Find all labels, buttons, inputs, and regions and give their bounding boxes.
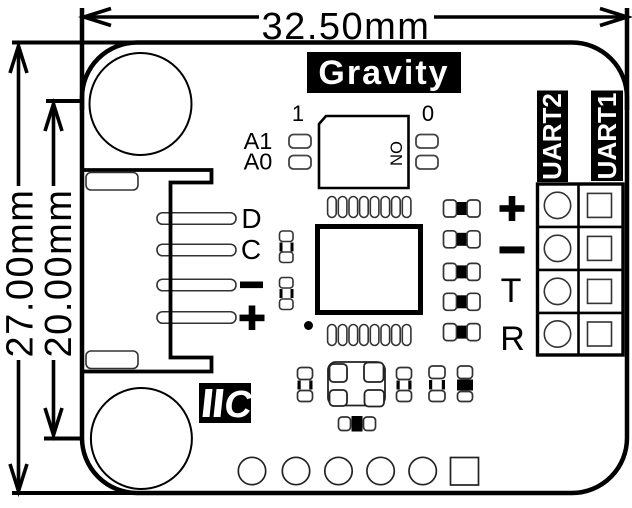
svg-text:C: C xyxy=(224,384,252,426)
svg-text:32.50mm: 32.50mm xyxy=(262,6,431,48)
svg-text:UART1: UART1 xyxy=(592,93,622,180)
svg-text:Gravity: Gravity xyxy=(318,54,449,92)
svg-text:20.00mm: 20.00mm xyxy=(38,189,80,358)
svg-text:D: D xyxy=(241,203,261,234)
svg-text:R: R xyxy=(500,320,525,358)
svg-text:27.00mm: 27.00mm xyxy=(0,189,42,358)
svg-text:UART2: UART2 xyxy=(537,93,567,180)
svg-text:0: 0 xyxy=(422,101,434,126)
svg-text:T: T xyxy=(501,272,522,310)
svg-text:C: C xyxy=(241,234,261,265)
svg-text:A0: A0 xyxy=(244,149,273,175)
svg-text:ON: ON xyxy=(387,141,405,166)
svg-text:1: 1 xyxy=(292,101,304,126)
